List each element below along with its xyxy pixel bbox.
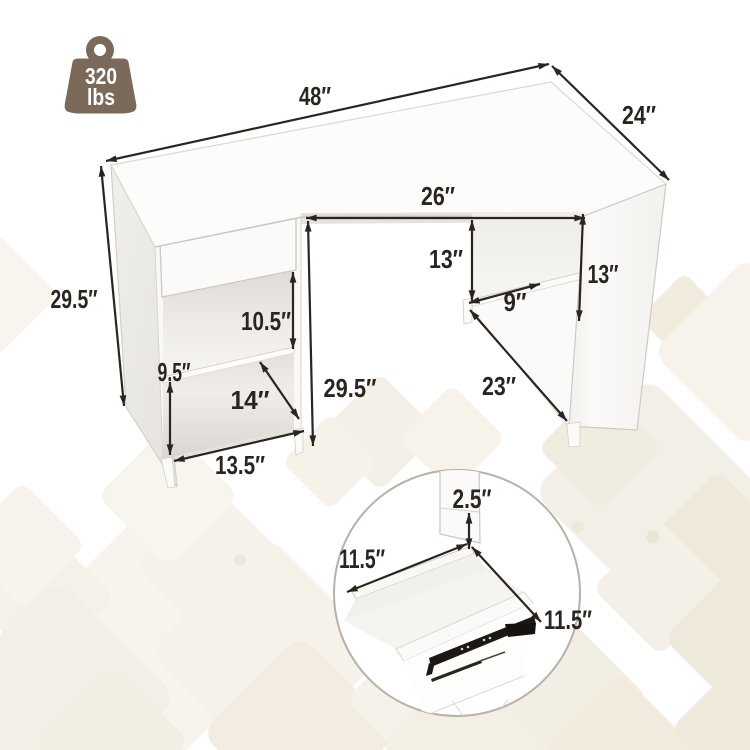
svg-text:11.5″: 11.5″ — [544, 605, 592, 635]
svg-text:23″: 23″ — [482, 371, 516, 401]
svg-text:29.5″: 29.5″ — [324, 373, 377, 403]
svg-text:9″: 9″ — [504, 287, 527, 317]
svg-text:29.5″: 29.5″ — [51, 284, 98, 314]
svg-text:13″: 13″ — [588, 259, 619, 289]
svg-text:2.5″: 2.5″ — [453, 484, 492, 514]
svg-text:24″: 24″ — [622, 100, 656, 130]
svg-text:48″: 48″ — [299, 81, 331, 111]
svg-text:9.5″: 9.5″ — [158, 357, 191, 387]
svg-text:10.5″: 10.5″ — [241, 306, 291, 336]
svg-text:lbs: lbs — [87, 84, 115, 110]
svg-text:26″: 26″ — [421, 181, 455, 211]
svg-text:14″: 14″ — [231, 385, 270, 415]
svg-text:11.5″: 11.5″ — [339, 544, 385, 574]
svg-text:13.5″: 13.5″ — [215, 450, 265, 480]
svg-text:13″: 13″ — [429, 244, 463, 274]
